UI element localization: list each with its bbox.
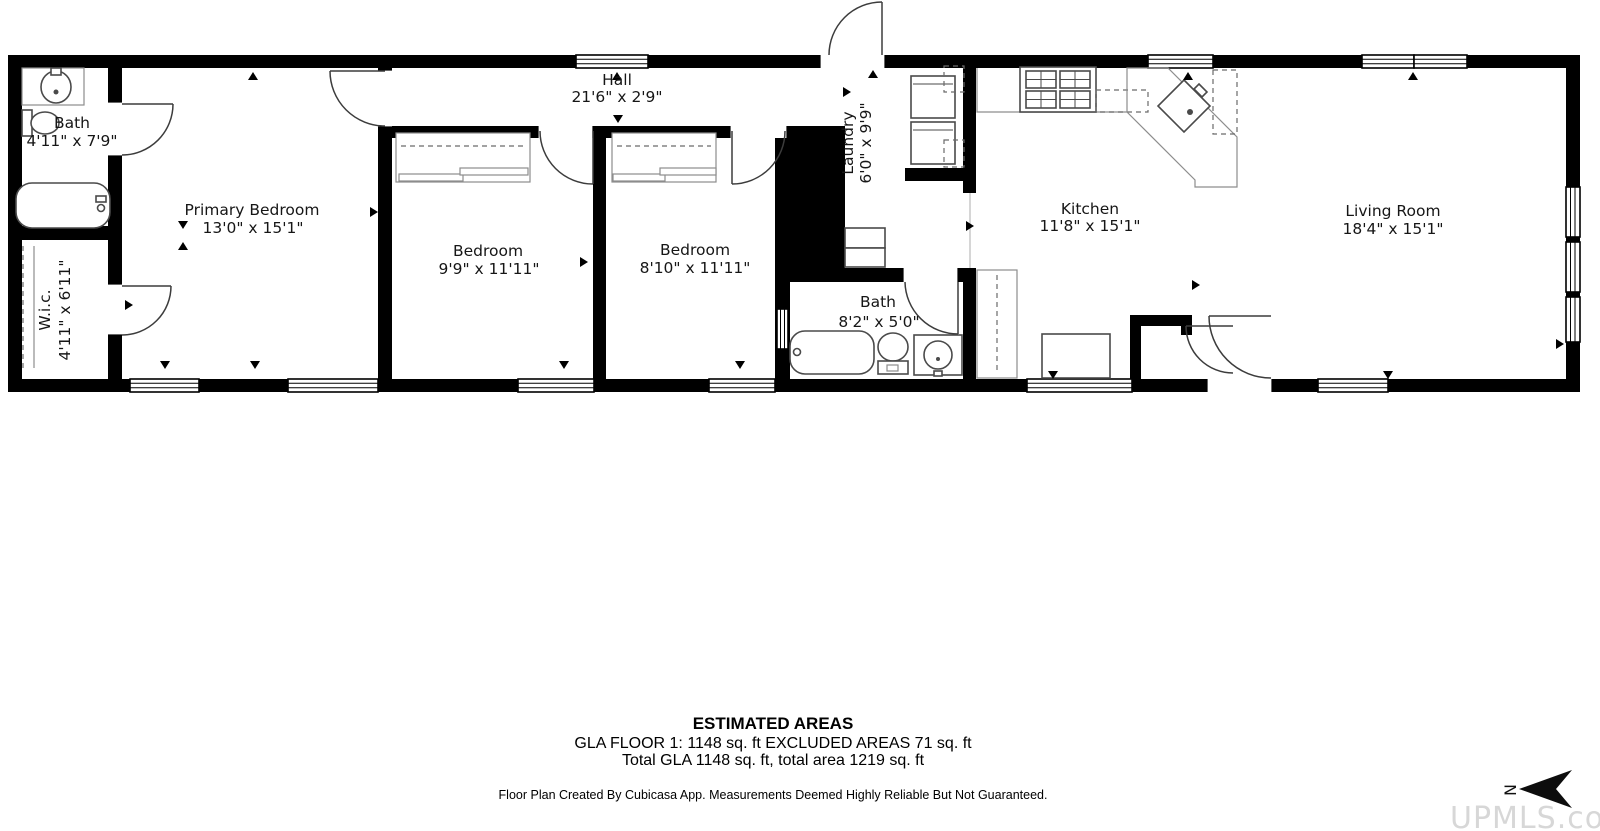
- room-name-bedroom2: Bedroom: [660, 241, 730, 259]
- areas-title: ESTIMATED AREAS: [0, 714, 1546, 734]
- sink: [41, 71, 71, 103]
- tub-faucet: [794, 349, 801, 356]
- window: [709, 379, 775, 392]
- room-dims-primary: 13'0" x 15'1": [203, 219, 304, 237]
- closet-door: [1186, 326, 1233, 373]
- faucet: [934, 371, 942, 376]
- room-labels: Bath 4'11" x 7'9" W.i.c. 4'11" x 6'11" P…: [26, 71, 1443, 360]
- washer: [911, 76, 955, 118]
- window: [1318, 379, 1388, 392]
- floor-plan-svg: Bath 4'11" x 7'9" W.i.c. 4'11" x 6'11" P…: [0, 0, 1600, 831]
- wic-door: [122, 286, 171, 335]
- entry-door: [829, 2, 882, 55]
- room-name-laundry: Laundry: [839, 111, 857, 174]
- cabinet: [845, 248, 885, 267]
- window: [1566, 187, 1580, 237]
- room-dims-hall: 21'6" x 2'9": [571, 88, 662, 106]
- room-name-wic: W.i.c.: [36, 289, 54, 330]
- room-dims-laundry: 6'0" x 9'9": [857, 102, 875, 183]
- bedroom2-closet: [612, 133, 716, 182]
- wic-fixtures: [23, 246, 34, 368]
- window: [518, 379, 594, 392]
- upmls-watermark: UPMLS.com: [1450, 801, 1600, 831]
- excluded-area: [775, 126, 845, 268]
- room-dims-bedroom2: 8'10" x 11'11": [640, 259, 751, 277]
- window: [1414, 55, 1467, 68]
- window: [1027, 379, 1132, 392]
- room-dims-wic: 4'11" x 6'11": [56, 260, 74, 361]
- room-dims-living: 18'4" x 15'1": [1343, 220, 1444, 238]
- cabinet: [845, 228, 885, 248]
- window: [576, 55, 648, 68]
- sink: [924, 341, 952, 369]
- window: [288, 379, 378, 392]
- bedroom1-closet: [396, 133, 530, 182]
- window: [130, 379, 199, 392]
- room-name-bath1: Bath: [54, 114, 90, 132]
- toilet-bowl: [878, 333, 908, 361]
- room-dims-bath2: 8'2" x 5'0": [838, 313, 919, 331]
- bath2-fixtures: [790, 331, 962, 376]
- room-name-hall: Hall: [602, 71, 632, 89]
- room-name-bedroom1: Bedroom: [453, 242, 523, 260]
- room-dims-kitchen: 11'8" x 15'1": [1040, 217, 1141, 235]
- window: [1362, 55, 1414, 68]
- room-name-kitchen: Kitchen: [1061, 200, 1119, 218]
- areas-total-line: Total GLA 1148 sq. ft, total area 1219 s…: [0, 752, 1546, 770]
- window: [1566, 242, 1580, 292]
- window: [777, 309, 788, 349]
- room-dims-bath1: 4'11" x 7'9": [26, 132, 117, 150]
- window: [1566, 297, 1580, 342]
- tub-faucet: [96, 196, 106, 202]
- bedroom1-door: [540, 131, 593, 184]
- room-name-bath2: Bath: [860, 293, 896, 311]
- areas-gla-line: GLA FLOOR 1: 1148 sq. ft EXCLUDED AREAS …: [0, 735, 1546, 753]
- bathtub: [790, 331, 874, 374]
- room-dims-bedroom1: 9'9" x 11'11": [439, 260, 540, 278]
- window: [1148, 55, 1213, 68]
- primary-bedroom-door: [330, 71, 385, 126]
- faucet: [51, 68, 61, 75]
- room-name-living: Living Room: [1345, 202, 1440, 220]
- room-name-primary: Primary Bedroom: [185, 201, 320, 219]
- upper-cabinet: [1096, 90, 1148, 112]
- areas-disclaimer: Floor Plan Created By Cubicasa App. Meas…: [0, 788, 1546, 802]
- bathtub: [16, 183, 110, 228]
- bath-door: [122, 104, 173, 155]
- dryer: [911, 122, 955, 164]
- floor-plan-page: Bath 4'11" x 7'9" W.i.c. 4'11" x 6'11" P…: [0, 0, 1600, 831]
